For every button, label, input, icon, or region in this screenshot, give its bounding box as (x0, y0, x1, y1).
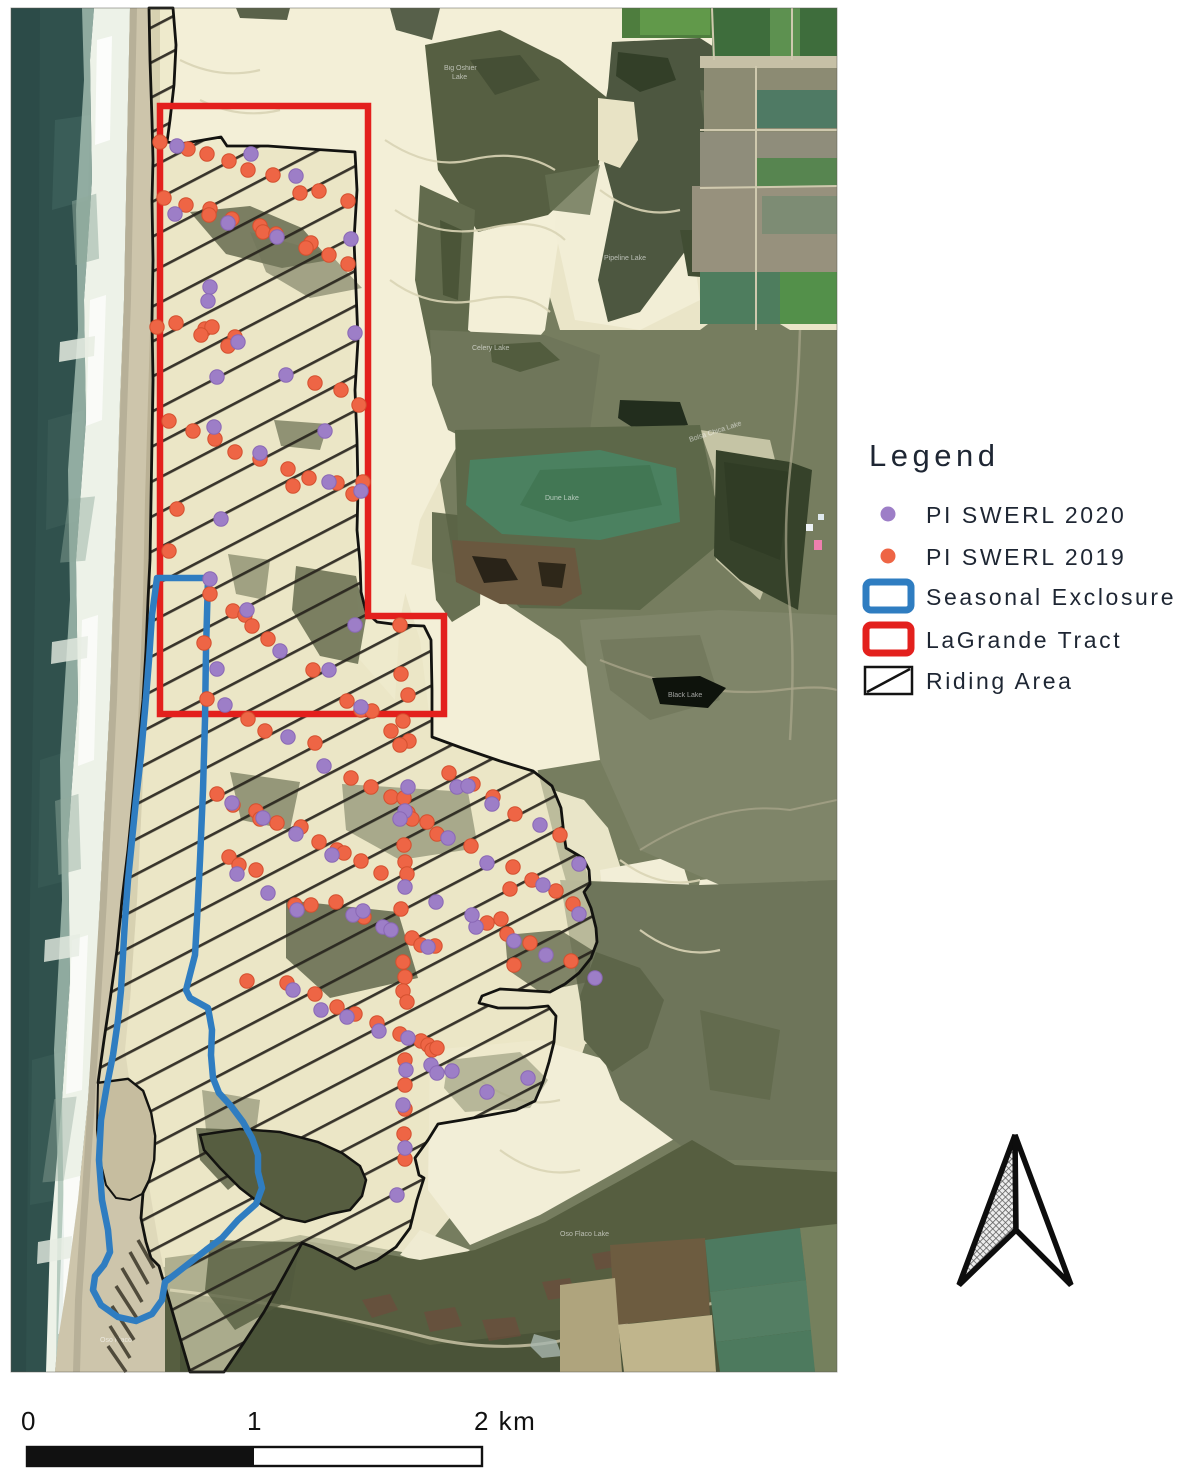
svg-text:0: 0 (21, 1406, 35, 1436)
svg-text:Oso Flaco Lake: Oso Flaco Lake (560, 1231, 609, 1238)
svg-text:Big Oshier: Big Oshier (444, 65, 477, 72)
svg-text:LaGrande Tract: LaGrande Tract (926, 627, 1122, 653)
svg-text:Seasonal Exclosure: Seasonal Exclosure (926, 584, 1176, 610)
svg-text:1: 1 (247, 1406, 261, 1436)
svg-text:PI SWERL 2019: PI SWERL 2019 (926, 544, 1126, 570)
svg-text:Legend: Legend (869, 438, 999, 473)
svg-text:Pipeline Lake: Pipeline Lake (604, 255, 646, 262)
svg-text:Black Lake: Black Lake (668, 692, 702, 699)
svg-text:Riding Area: Riding Area (926, 668, 1074, 694)
svg-text:Lake: Lake (452, 74, 467, 81)
svg-text:2 km: 2 km (474, 1406, 536, 1436)
svg-text:Celery Lake: Celery Lake (472, 345, 509, 352)
svg-text:PI SWERL 2020: PI SWERL 2020 (926, 502, 1126, 528)
svg-text:Dune Lake: Dune Lake (545, 495, 579, 502)
